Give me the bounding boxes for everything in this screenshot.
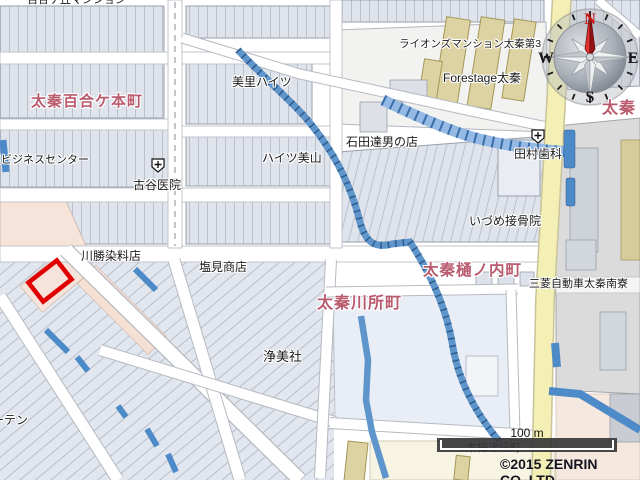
label-jobisha: 浄美社 xyxy=(263,350,302,365)
town-label-uzumasa-hinouchicho: 太秦樋ノ内町 xyxy=(423,262,522,280)
compass-east-letter: E xyxy=(628,50,639,67)
map-canvas[interactable]: N E S W 太秦百合ケ本町 太秦樋ノ内町 太秦川所町 太秦 百合ケ丘マンショ… xyxy=(0,0,640,480)
copyright-attribution: ©2015 ZENRIN CO.,LTD. xyxy=(500,456,640,480)
compass-west-letter: W xyxy=(538,50,554,67)
label-shiomi-shop: 塩見商店 xyxy=(199,261,247,275)
clinic-icon xyxy=(151,158,165,173)
label-furutani-clinic: 古谷医院 xyxy=(133,179,181,193)
label-clipped-ten: ーテン xyxy=(0,414,28,428)
town-label-uzumasa-kawashocho: 太秦川所町 xyxy=(317,295,402,313)
label-sakae-business-center: 栄ビジネスセンター xyxy=(0,154,89,167)
label-ishida-tatsuo-shop: 石田達男の店 xyxy=(346,136,418,150)
town-label-uzumasa-yurigahoncho: 太秦百合ケ本町 xyxy=(31,93,143,110)
clinic-icon xyxy=(531,129,545,144)
town-label-uzumasa: 太秦 xyxy=(602,100,636,118)
label-misato-heights: 美里ハイツ xyxy=(232,76,292,90)
scale-bar-label: 100 m xyxy=(437,426,617,440)
compass-south-letter: S xyxy=(586,89,595,106)
label-forestage-uzumasa: Forestage太秦 xyxy=(443,72,521,86)
map-graphics: N E S W xyxy=(0,0,640,480)
compass-north-letter: N xyxy=(584,11,596,28)
label-kawakatsu-dye-shop: 川勝染料店 xyxy=(81,250,141,264)
scale-bar xyxy=(437,438,617,452)
label-tamura-dental: 田村歯科 xyxy=(514,148,562,162)
label-heights-miyama: ハイツ美山 xyxy=(262,152,322,166)
scale-bar-bracket xyxy=(440,440,614,450)
label-izume-osteopathic: いづめ接骨院 xyxy=(469,215,541,229)
label-yurigaoka-mansion: 百合ケ丘マンション xyxy=(27,0,126,7)
label-mitsubishi-motors-dorm: 三菱自動車太秦南寮 xyxy=(529,278,628,291)
label-lions-mansion-uzumasa-3: ライオンズマンション太秦第3 xyxy=(399,38,541,50)
